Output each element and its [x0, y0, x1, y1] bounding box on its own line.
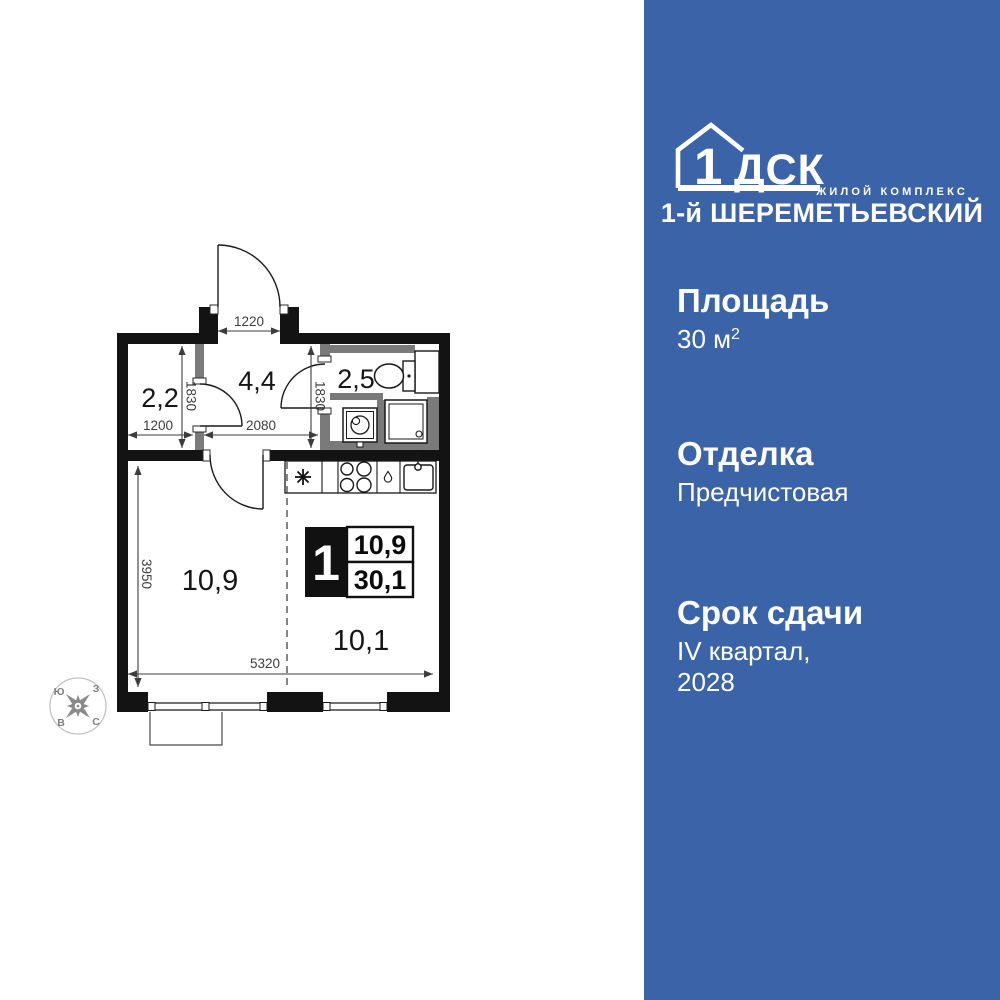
spec-finish-label: Отделка: [677, 435, 980, 473]
badge-total-area: 30,1: [354, 565, 407, 595]
dim-hall-width: 2080: [246, 418, 276, 433]
compass-west: З: [93, 683, 100, 695]
room-label-hall-small: 2,2: [141, 383, 179, 413]
toilet-icon: [375, 364, 404, 388]
spec-finish: Отделка Предчистовая: [677, 435, 980, 508]
spec-deadline: Срок сдачи IV квартал, 2028: [677, 594, 980, 698]
compass-north: С: [92, 716, 100, 728]
compass-south: Ю: [54, 686, 65, 698]
info-panel: 1 ДСК ЖИЛОЙ КОМПЛЕКС 1-й ШЕРЕМЕТЬЕВСКИЙ …: [644, 0, 1000, 1000]
complex-title: 1-й ШЕРЕМЕТЬЕВСКИЙ: [644, 198, 1000, 229]
entrance-door-arc: [218, 245, 280, 307]
balcony-outline: [150, 712, 222, 745]
room-label-hall: 4,4: [238, 366, 276, 396]
logo-tagline: ЖИЛОЙ КОМПЛЕКС: [815, 185, 968, 198]
room-label-living: 10,9: [182, 565, 238, 597]
room-label-bath: 2,5: [337, 364, 375, 394]
dim-hall-height: 1830: [313, 381, 328, 411]
brand-logo: 1 ДСК ЖИЛОЙ КОМПЛЕКС: [644, 110, 1000, 205]
compass-east: В: [57, 717, 65, 729]
room-label-kitchen: 10,1: [333, 625, 389, 657]
logo-one: 1: [694, 138, 722, 195]
dim-living-height: 3950: [139, 559, 154, 589]
spec-deadline-value: IV квартал, 2028: [677, 636, 980, 698]
apartment-badge: 1 10,9 30,1: [305, 527, 413, 597]
badge-rooms-count: 1: [312, 535, 340, 591]
spec-area-sup: 2: [731, 326, 740, 343]
dim-left-width: 1200: [143, 418, 173, 433]
badge-living-area: 10,9: [354, 530, 407, 560]
listing-card: 1220 1200 2080 1830 1830 3950 5320 2,2 4…: [0, 0, 1000, 1000]
spec-deadline-year: 2028: [677, 667, 980, 698]
logo-dsk: ДСК: [734, 146, 825, 194]
spec-area-label: Площадь: [677, 282, 980, 320]
spec-area: Площадь 30 м2: [677, 282, 980, 355]
living-door-arc: [210, 455, 263, 509]
dim-left-height: 1830: [184, 381, 199, 411]
dim-entrance: 1220: [234, 314, 264, 329]
floor-plan: 1220 1200 2080 1830 1830 3950 5320 2,2 4…: [0, 0, 644, 1000]
duct-shaft: [415, 351, 439, 393]
hall-room22-door-arc: [200, 384, 242, 426]
spec-deadline-label: Срок сдачи: [677, 594, 980, 632]
dim-living-width: 5320: [250, 656, 280, 671]
spec-area-value: 30 м2: [677, 324, 980, 355]
spec-finish-value: Предчистовая: [677, 477, 980, 508]
compass-icon: Ю З В С: [50, 678, 106, 734]
